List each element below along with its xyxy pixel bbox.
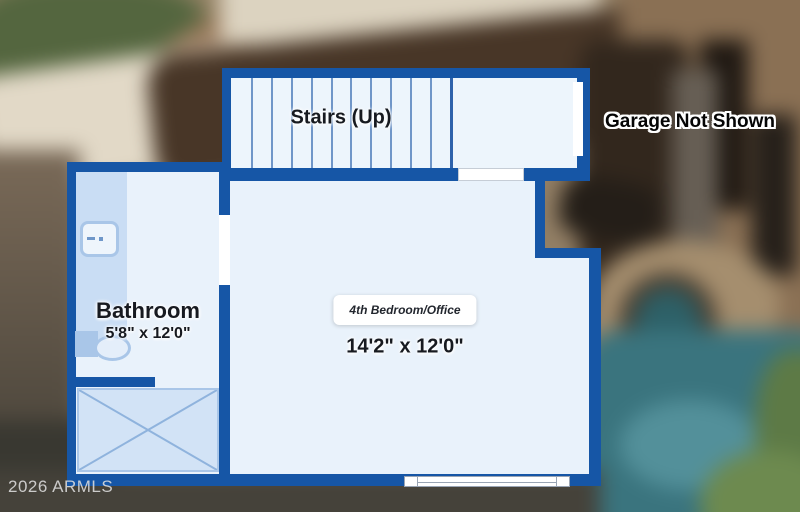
stair-landing [453, 78, 577, 168]
bedroom-room-upper [230, 181, 535, 474]
window [404, 476, 570, 487]
stairs-label: Stairs (Up) [290, 107, 391, 130]
window-center-line [405, 482, 569, 483]
wall-bathroom-top [67, 162, 230, 172]
wall-stairs-top [222, 68, 590, 78]
shower-x-mark [79, 390, 217, 470]
door-opening-landing-right [573, 82, 583, 156]
stair-tread-line [271, 78, 273, 168]
door-opening-landing-bottom [458, 168, 524, 181]
window-cap-left [404, 476, 418, 487]
wall-right-lower [589, 248, 601, 486]
window-cap-right [556, 476, 570, 487]
bathroom-dimensions: 5'8" x 12'0" [105, 325, 190, 343]
shower-enclosure [77, 388, 219, 472]
bedroom-dimensions: 14'2" x 12'0" [346, 336, 463, 359]
bedroom-room-lower [535, 258, 589, 474]
sink-fixture [80, 221, 119, 257]
wall-bathroom-bedroom [219, 162, 230, 474]
stair-tread-line [410, 78, 412, 168]
sink-faucet-mark [87, 237, 95, 240]
wall-bedroom-step-vertical [535, 168, 545, 258]
stair-tread-line [430, 78, 432, 168]
garage-note-label: Garage Not Shown [605, 111, 775, 133]
stairs-landing-divider [450, 78, 453, 168]
door-opening-bathroom [219, 215, 230, 285]
bedroom-name-badge: 4th Bedroom/Office [333, 295, 476, 325]
sink-drain-mark [99, 237, 103, 241]
floorplan: Stairs (Up) Garage Not Shown Bathroom 5'… [0, 0, 800, 512]
bathroom-label: Bathroom [96, 298, 200, 324]
stair-tread-line [251, 78, 253, 168]
wall-shower-stub [67, 377, 155, 387]
wall-left [67, 162, 76, 486]
mls-watermark: 2026 ARMLS [8, 477, 113, 497]
floorplan-screenshot: Stairs (Up) Garage Not Shown Bathroom 5'… [0, 0, 800, 512]
